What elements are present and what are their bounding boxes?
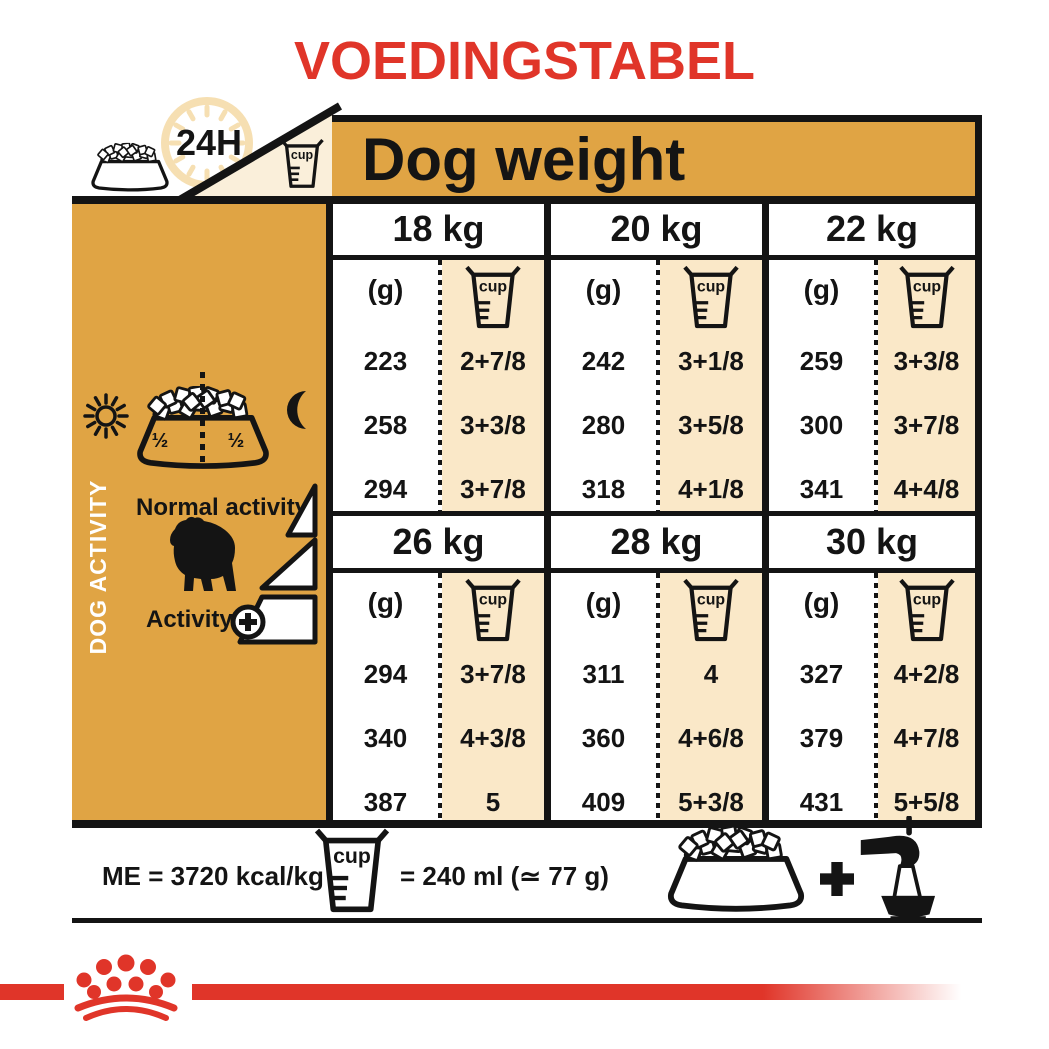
grams-value: 431: [769, 787, 874, 817]
cup-subcolumn: 3+7/8 4+3/8 5: [442, 573, 544, 820]
cup-value: 3+3/8: [878, 346, 975, 376]
activity-label: Activity: [146, 606, 233, 634]
weight-group-20kg: 20 kg (g) 242 280 318 3+1/8 3+5/8 4+1/8: [551, 203, 762, 511]
grid-line-col-1: [326, 203, 333, 828]
brand-band-left: [0, 984, 64, 1000]
water-tap-icon: [854, 816, 940, 920]
grams-subcolumn: (g) 242 280 318: [551, 260, 656, 511]
grams-value: 327: [769, 659, 874, 689]
cup-value: 3+7/8: [878, 410, 975, 440]
cup-subcolumn: 3+3/8 3+7/8 4+4/8: [878, 260, 975, 511]
weight-header: 22 kg: [769, 203, 975, 255]
weight-group-26kg: 26 kg (g) 294 340 387 3+7/8 4+3/8 5: [333, 516, 544, 820]
grid-line-footer-bottom: [72, 918, 982, 923]
cup-subcolumn: 2+7/8 3+3/8 3+7/8: [442, 260, 544, 511]
weight-group-28kg: 28 kg (g) 311 360 409 4 4+6/8 5+3/8: [551, 516, 762, 820]
grams-value: 294: [333, 474, 438, 504]
weight-header: 28 kg: [551, 516, 762, 568]
cup-value: 4+3/8: [442, 723, 544, 753]
cup-value: 3+7/8: [442, 659, 544, 689]
grams-subcolumn: (g) 327 379 431: [769, 573, 874, 820]
kibble-bowl-icon: [657, 826, 815, 918]
cup-equivalence-label: = 240 ml (≃ 77 g): [400, 861, 609, 892]
plus-icon: [820, 862, 854, 896]
weight-group-30kg: 30 kg (g) 327 379 431 4+2/8 4+7/8 5+5/8: [769, 516, 975, 820]
weight-header: 26 kg: [333, 516, 544, 568]
grid-line-table-top: [72, 196, 982, 204]
cup-value: 5+3/8: [660, 787, 762, 817]
grid-line-col-3: [762, 203, 769, 828]
grid-line-header-top: [332, 115, 982, 122]
grid-line-row1-header-bottom: [326, 255, 982, 260]
cup-value: 4: [660, 659, 762, 689]
bowl-split-dotted-line: [200, 372, 205, 464]
grams-value: 259: [769, 346, 874, 376]
cup-value: 4+1/8: [660, 474, 762, 504]
weight-header: 18 kg: [333, 203, 544, 255]
cup-value: 4+7/8: [878, 723, 975, 753]
grams-unit-label: (g): [551, 274, 656, 306]
cup-subcolumn: 4 4+6/8 5+3/8: [660, 573, 762, 820]
bulldog-icon: [164, 514, 242, 598]
grams-value: 318: [551, 474, 656, 504]
cup-value: 3+7/8: [442, 474, 544, 504]
grams-value: 360: [551, 723, 656, 753]
cup-value: 3+5/8: [660, 410, 762, 440]
grams-value: 300: [769, 410, 874, 440]
energy-label: ME = 3720 kcal/kg: [102, 861, 324, 892]
crown-logo: [72, 952, 184, 1034]
grams-value: 242: [551, 346, 656, 376]
bowl-half-right-label: ½: [216, 430, 256, 453]
grams-value: 379: [769, 723, 874, 753]
cup-value: 5: [442, 787, 544, 817]
cup-icon: [899, 265, 955, 333]
cup-value: 4+6/8: [660, 723, 762, 753]
cup-icon: [899, 578, 955, 646]
grid-line-col-2: [544, 203, 551, 828]
sun-icon: [82, 392, 130, 440]
bowl-half-left-label: ½: [140, 430, 180, 453]
grams-unit-label: (g): [333, 587, 438, 619]
grams-value: 311: [551, 659, 656, 689]
page-title: VOEDINGSTABEL: [0, 30, 1049, 92]
grams-unit-label: (g): [769, 274, 874, 306]
grams-value: 341: [769, 474, 874, 504]
dog-activity-label: DOG ACTIVITY: [84, 478, 112, 656]
cup-value: 3+1/8: [660, 346, 762, 376]
cup-value: 4+4/8: [878, 474, 975, 504]
weight-header: 20 kg: [551, 203, 762, 255]
cup-value: 5+5/8: [878, 787, 975, 817]
cup-icon: [683, 265, 739, 333]
grams-unit-label: (g): [769, 587, 874, 619]
dog-weight-header: Dog weight: [332, 115, 982, 203]
grams-subcolumn: (g) 223 258 294: [333, 260, 438, 511]
grid-line-table-bottom: [72, 820, 982, 828]
dog-weight-label: Dog weight: [362, 125, 685, 194]
weight-header: 30 kg: [769, 516, 975, 568]
grams-subcolumn: (g) 294 340 387: [333, 573, 438, 820]
grams-value: 340: [333, 723, 438, 753]
grams-subcolumn: (g) 311 360 409: [551, 573, 656, 820]
grid-line-row2-header-bottom: [326, 568, 982, 573]
cup-subcolumn: 4+2/8 4+7/8 5+5/8: [878, 573, 975, 820]
cup-subcolumn: 3+1/8 3+5/8 4+1/8: [660, 260, 762, 511]
grams-value: 223: [333, 346, 438, 376]
grams-value: 294: [333, 659, 438, 689]
grams-unit-label: (g): [333, 274, 438, 306]
grid-line-row2-header-top: [326, 511, 982, 516]
grams-subcolumn: (g) 259 300 341: [769, 260, 874, 511]
cup-icon: [465, 578, 521, 646]
cup-icon: [314, 828, 390, 918]
grid-line-right-border: [975, 115, 982, 828]
cup-value: 4+2/8: [878, 659, 975, 689]
moon-icon: [280, 388, 314, 432]
activity-plus-icon: [228, 602, 268, 642]
cup-icon: [280, 138, 324, 192]
cup-icon: [683, 578, 739, 646]
weight-group-18kg: 18 kg (g) 223 258 294 2+7/8 3+3/8 3+7/8: [333, 203, 544, 511]
grams-value: 387: [333, 787, 438, 817]
cup-icon: [465, 265, 521, 333]
feeding-table-page: cup: [0, 0, 1049, 1049]
grams-value: 258: [333, 410, 438, 440]
cup-value: 3+3/8: [442, 410, 544, 440]
brand-band-right: [192, 984, 985, 1000]
cup-value: 2+7/8: [442, 346, 544, 376]
weight-group-22kg: 22 kg (g) 259 300 341 3+3/8 3+7/8 4+4/8: [769, 203, 975, 511]
grams-value: 409: [551, 787, 656, 817]
grams-value: 280: [551, 410, 656, 440]
grams-unit-label: (g): [551, 587, 656, 619]
